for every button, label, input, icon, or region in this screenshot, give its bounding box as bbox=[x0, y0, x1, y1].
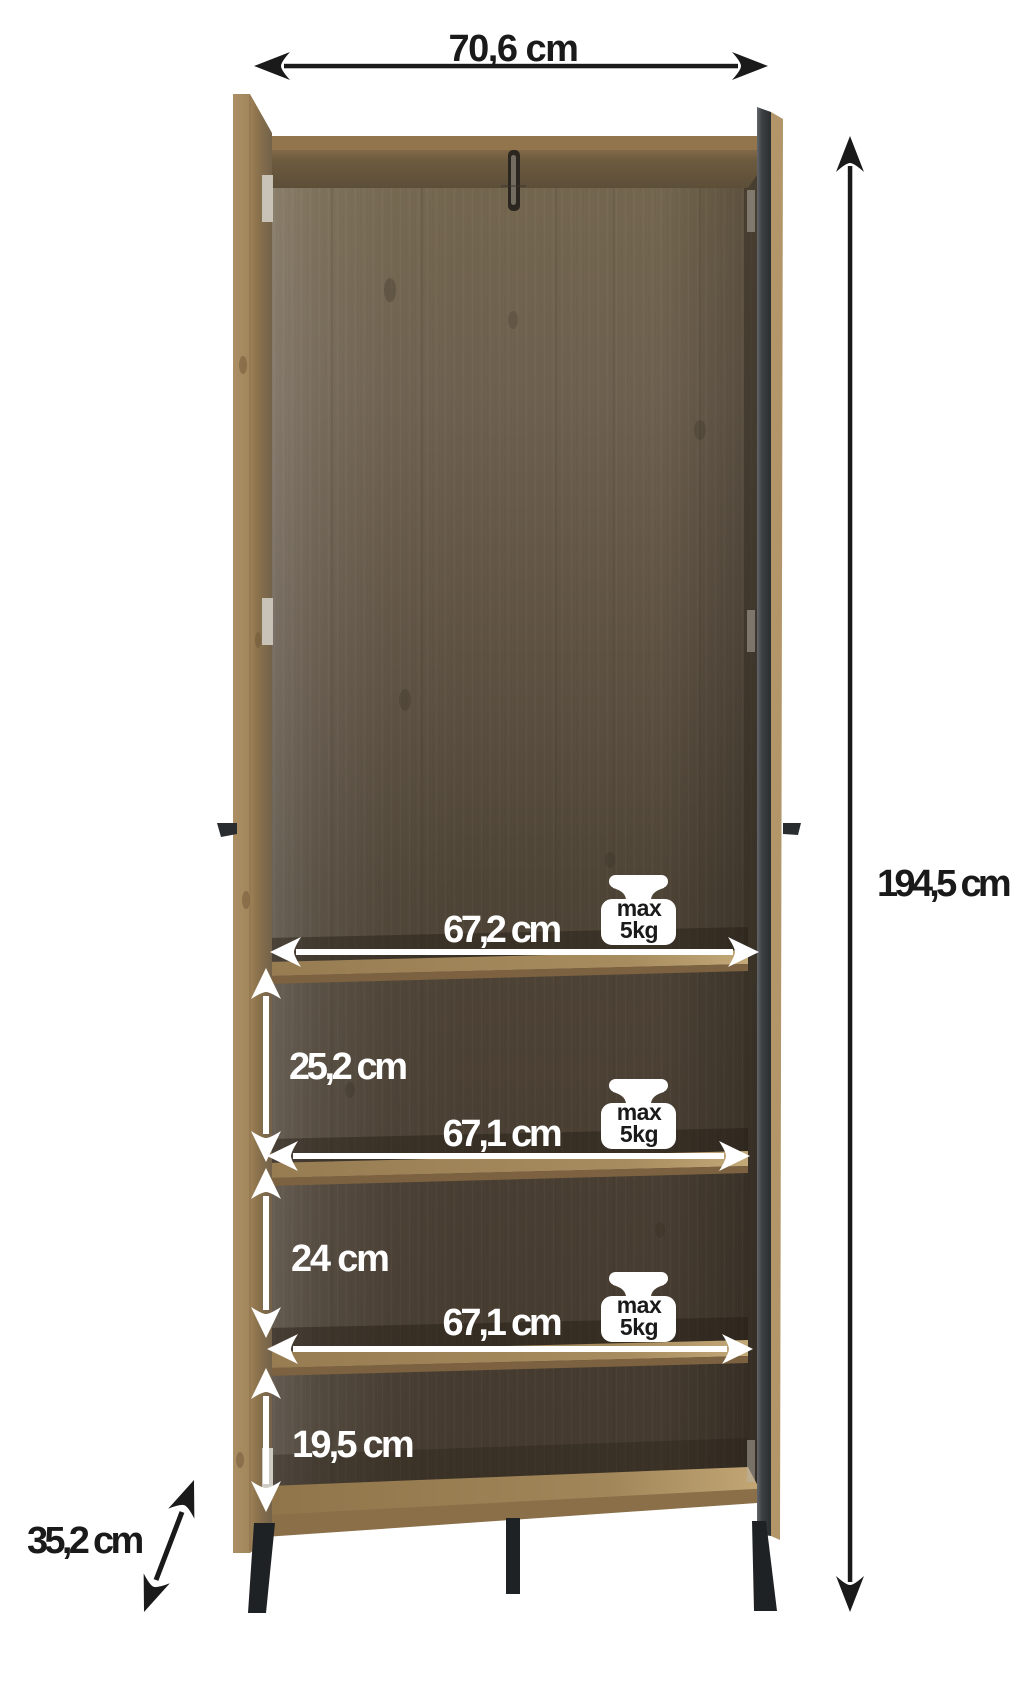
svg-text:67,1 cm: 67,1 cm bbox=[442, 1113, 560, 1155]
svg-text:19,5 cm: 19,5 cm bbox=[292, 1424, 413, 1466]
svg-text:70,6 cm: 70,6 cm bbox=[449, 28, 578, 70]
svg-text:67,1 cm: 67,1 cm bbox=[442, 1302, 560, 1344]
svg-text:5kg: 5kg bbox=[620, 917, 658, 943]
svg-text:25,2 cm: 25,2 cm bbox=[289, 1046, 406, 1088]
svg-text:67,2 cm: 67,2 cm bbox=[443, 909, 560, 951]
svg-text:35,2 cm: 35,2 cm bbox=[27, 1520, 142, 1562]
svg-text:194,5 cm: 194,5 cm bbox=[877, 863, 1010, 905]
svg-text:5kg: 5kg bbox=[620, 1314, 658, 1340]
svg-text:24 cm: 24 cm bbox=[291, 1238, 388, 1280]
svg-text:5kg: 5kg bbox=[620, 1121, 658, 1147]
